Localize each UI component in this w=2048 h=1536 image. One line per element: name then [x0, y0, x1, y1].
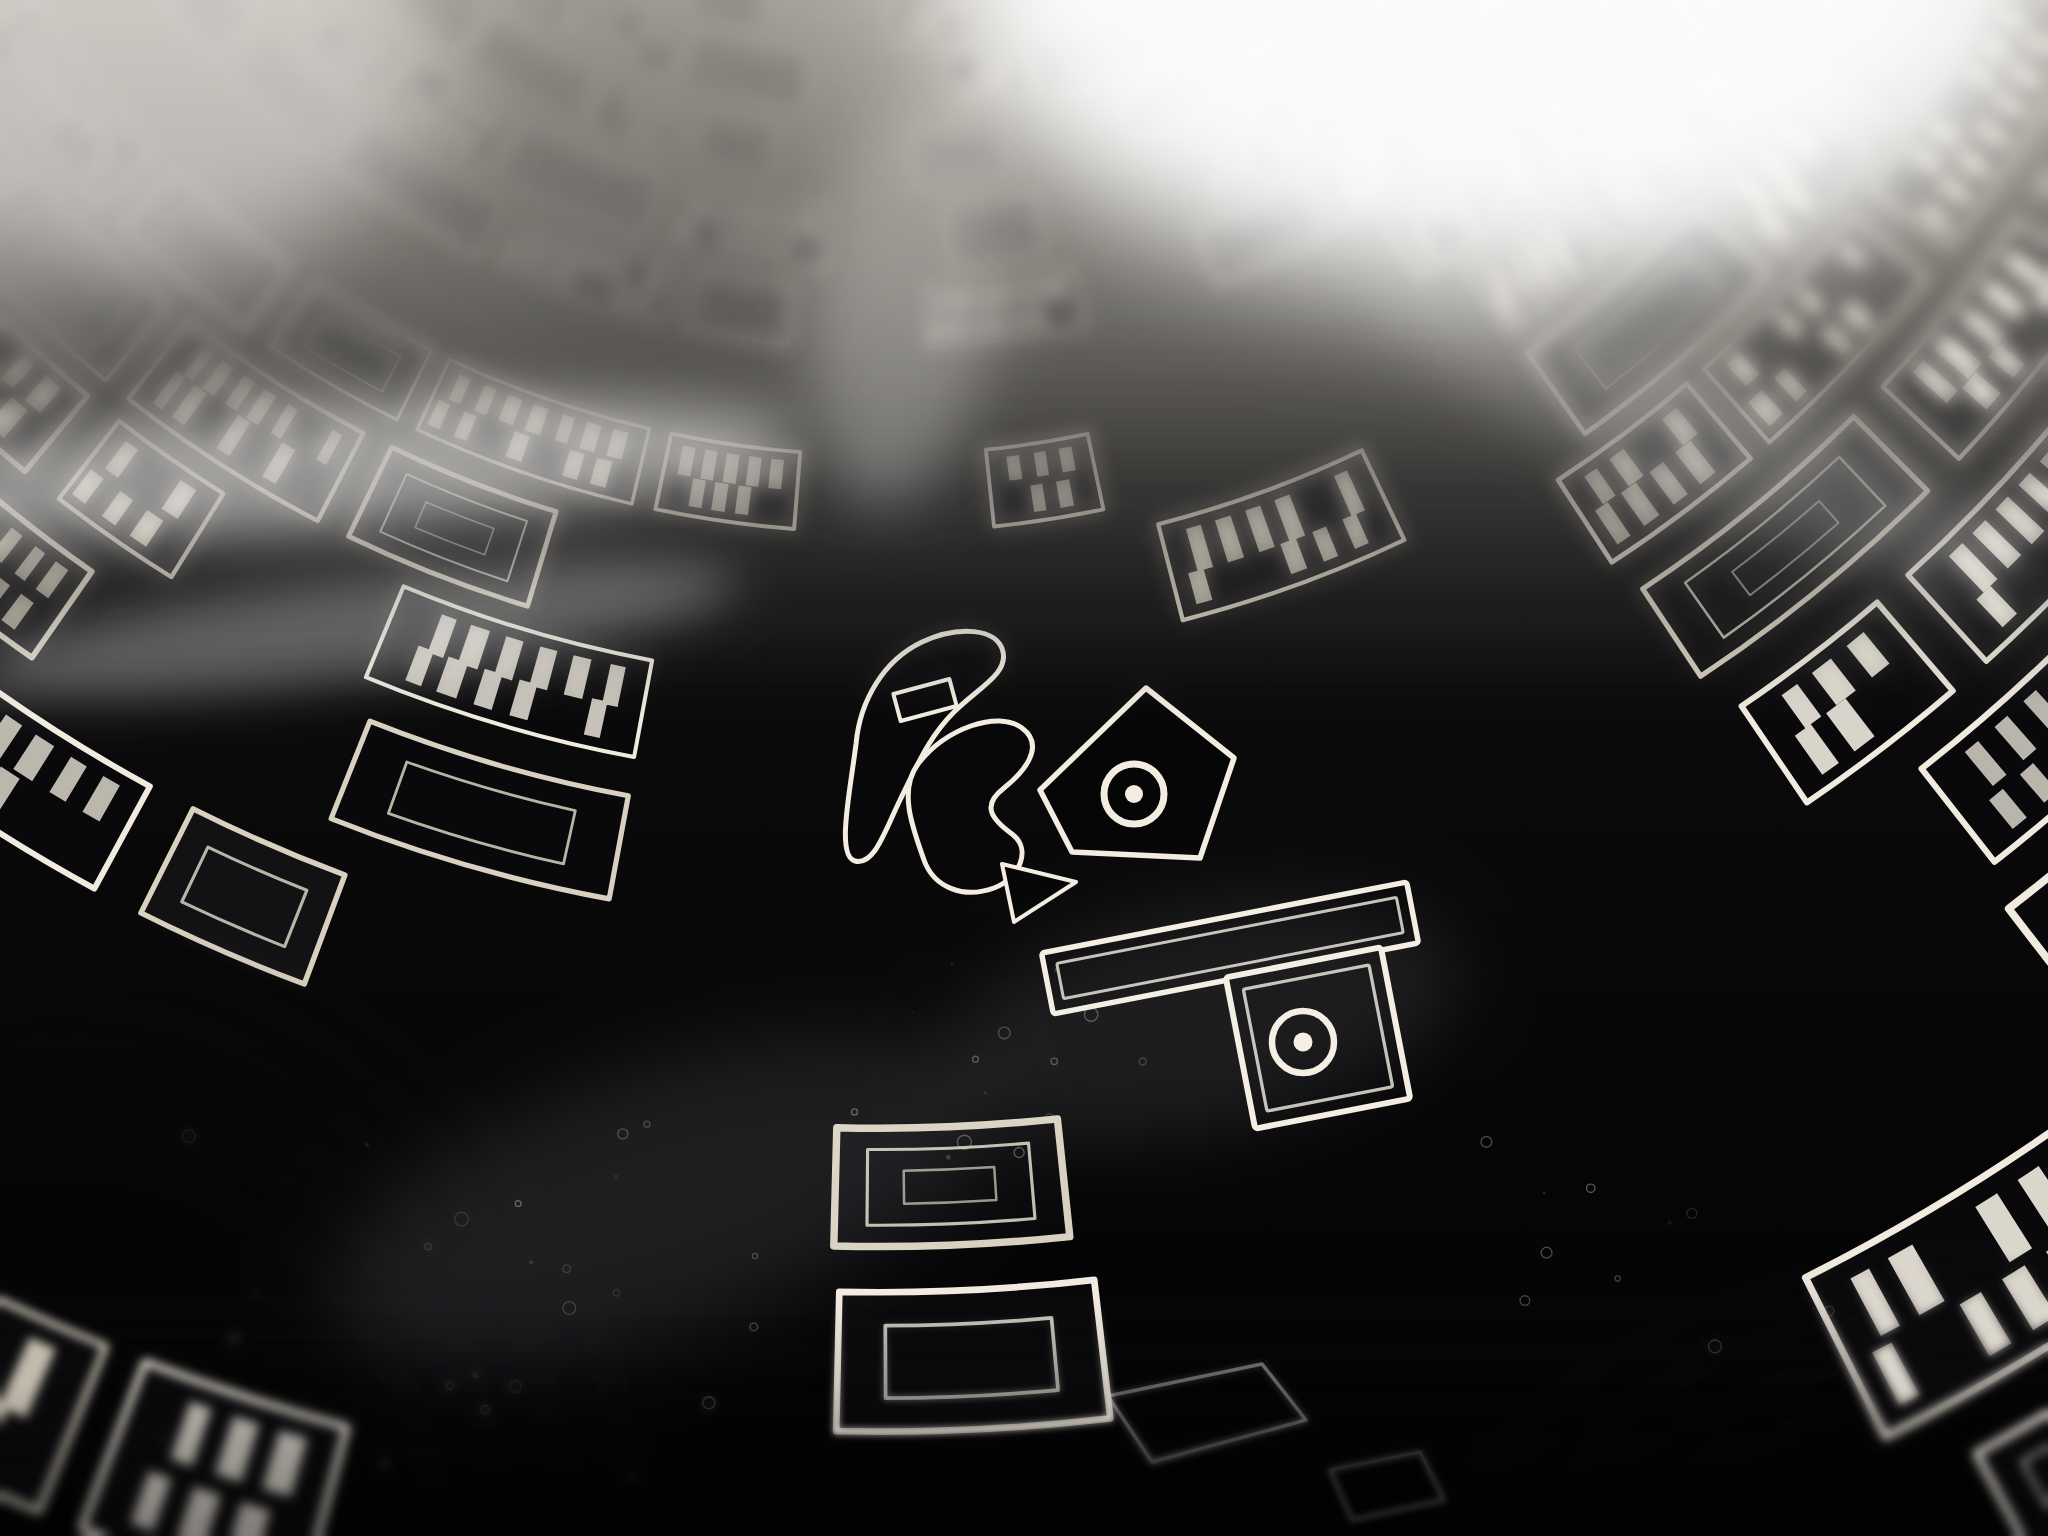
photo: [0, 0, 2048, 1536]
bottom-edge-blur-layer: [0, 0, 2048, 1536]
